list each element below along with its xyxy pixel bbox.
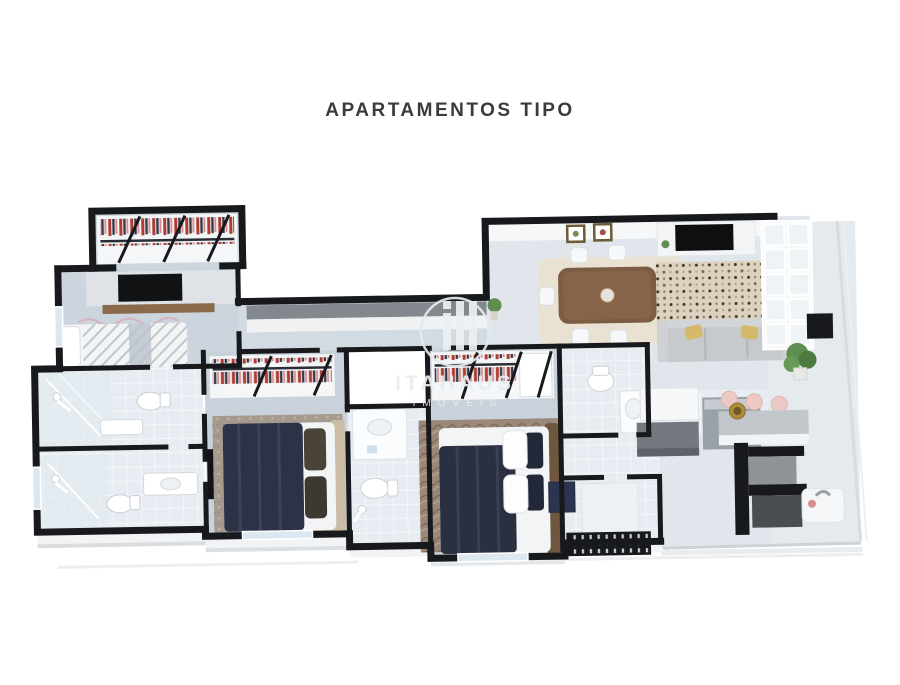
wardrobe-shelves xyxy=(519,353,552,397)
pillow xyxy=(503,475,528,513)
shower-head-icon xyxy=(53,393,61,401)
service-door xyxy=(582,483,639,534)
room-walk-in-closet xyxy=(97,214,238,264)
balcony-sink xyxy=(802,488,845,523)
tv-icon xyxy=(118,274,182,302)
sink xyxy=(100,419,142,435)
tv-unit xyxy=(657,221,756,257)
watermark-subtitle: IMÓVEIS xyxy=(413,396,504,409)
room-bedroom-2 xyxy=(205,354,346,534)
floorplan-render: ITAHAUS IMÓVEIS xyxy=(0,0,900,685)
pillow xyxy=(62,326,81,366)
pillow xyxy=(304,428,327,470)
shower-head-icon xyxy=(51,475,59,483)
stool-pink xyxy=(771,396,787,412)
pillow xyxy=(304,476,327,518)
toilet xyxy=(361,478,389,498)
master-bed xyxy=(61,323,188,369)
wardrobe-red-clothes xyxy=(212,357,331,384)
bed-navy xyxy=(439,423,561,555)
watermark-brand: ITAHAUS xyxy=(395,372,515,395)
window-glass xyxy=(54,307,63,347)
floorplan-svg: ITAHAUS IMÓVEIS xyxy=(0,0,900,685)
yellow-pillow xyxy=(740,325,759,340)
column xyxy=(807,313,833,338)
window-glass xyxy=(458,553,528,562)
dining-table xyxy=(558,266,657,324)
toilet xyxy=(107,495,133,513)
stool-pink xyxy=(746,394,762,410)
pillow xyxy=(503,431,528,469)
tv-icon xyxy=(675,224,733,251)
toilet xyxy=(137,392,163,410)
window-glass xyxy=(242,530,312,539)
wardrobe-red-clothes xyxy=(100,217,234,246)
bed-navy xyxy=(223,420,347,534)
grill xyxy=(734,442,808,535)
window-glass xyxy=(32,467,41,509)
shelf-window-grid xyxy=(761,221,813,350)
centerpiece xyxy=(600,288,614,302)
